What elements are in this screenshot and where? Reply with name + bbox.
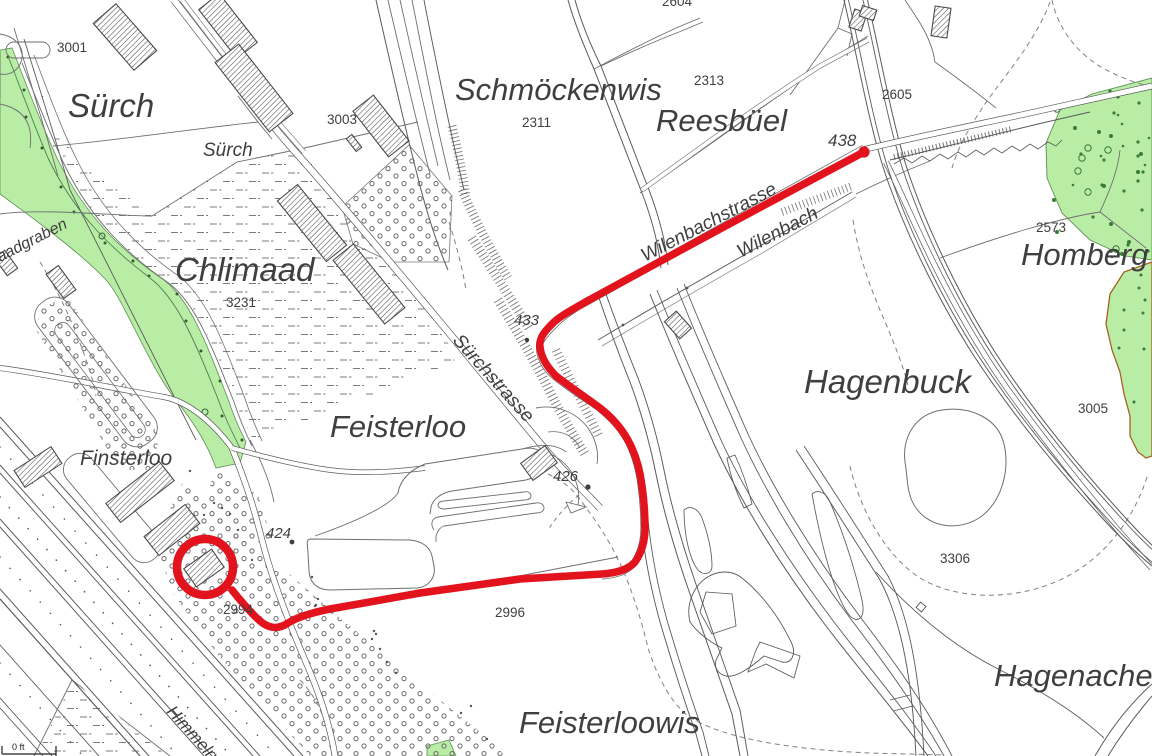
- svg-text:2996: 2996: [495, 605, 525, 620]
- svg-text:Finsterloo: Finsterloo: [80, 447, 173, 470]
- svg-text:426: 426: [553, 468, 579, 485]
- svg-text:2994: 2994: [223, 602, 254, 617]
- svg-text:2604: 2604: [662, 0, 693, 9]
- svg-text:3003: 3003: [327, 112, 357, 127]
- svg-text:Feisterloowis: Feisterloowis: [519, 705, 700, 740]
- svg-text:3005: 3005: [1078, 401, 1108, 416]
- svg-text:Schmöckenwis: Schmöckenwis: [455, 72, 662, 107]
- svg-text:2573: 2573: [1036, 220, 1066, 235]
- svg-text:438: 438: [828, 131, 857, 150]
- svg-text:Sürch: Sürch: [68, 87, 154, 124]
- svg-text:3231: 3231: [226, 295, 256, 310]
- svg-text:2605: 2605: [882, 87, 912, 102]
- svg-text:3306: 3306: [940, 551, 970, 566]
- svg-text:Feisterloo: Feisterloo: [330, 409, 466, 444]
- svg-text:433: 433: [514, 312, 540, 329]
- svg-text:2311: 2311: [522, 115, 551, 130]
- svg-text:Hagenacher: Hagenacher: [994, 658, 1152, 693]
- svg-text:3001: 3001: [57, 40, 87, 55]
- svg-text:Chlimaad: Chlimaad: [175, 251, 316, 288]
- svg-text:Homberg: Homberg: [1021, 237, 1149, 272]
- svg-text:2313: 2313: [694, 73, 724, 88]
- svg-text:Hagenbuck: Hagenbuck: [804, 363, 972, 400]
- svg-text:Reesbüel: Reesbüel: [656, 103, 788, 138]
- svg-text:Sürch: Sürch: [203, 140, 253, 161]
- svg-text:424: 424: [266, 525, 291, 542]
- svg-text:0 ft: 0 ft: [12, 742, 25, 752]
